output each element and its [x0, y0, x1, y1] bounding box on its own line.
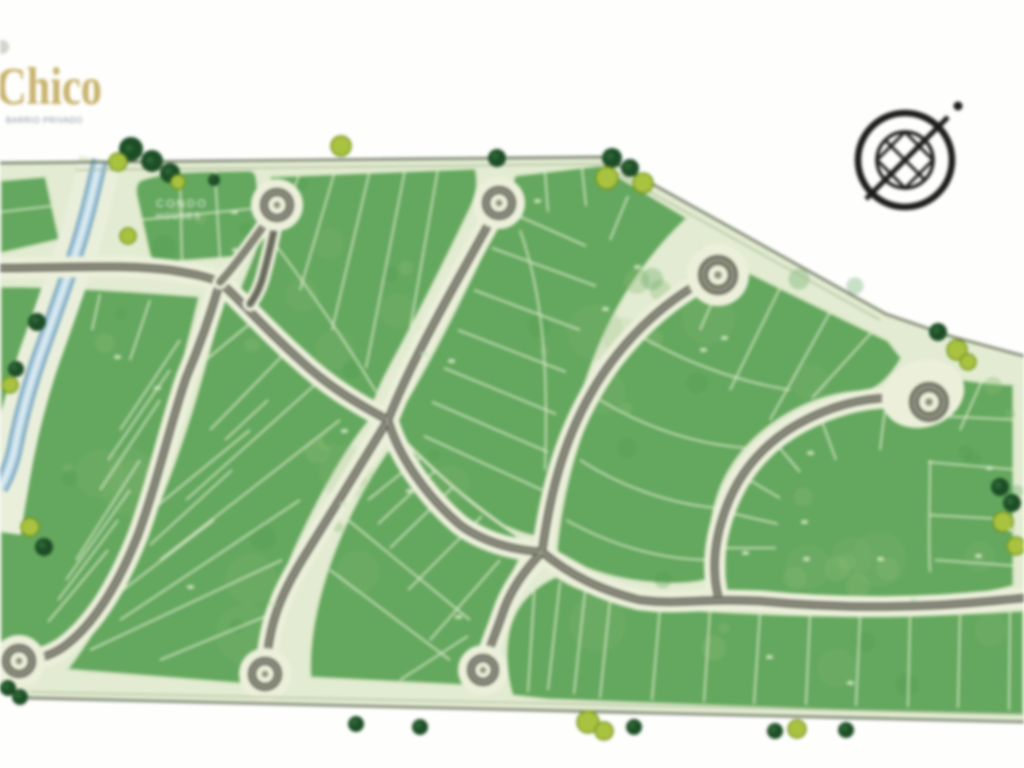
svg-text:BARRIO PRIVADO: BARRIO PRIVADO: [6, 116, 83, 125]
svg-text:HOUSES: HOUSES: [156, 211, 201, 221]
svg-text:Chico: Chico: [0, 58, 102, 116]
svg-text:CONDO: CONDO: [156, 198, 208, 210]
